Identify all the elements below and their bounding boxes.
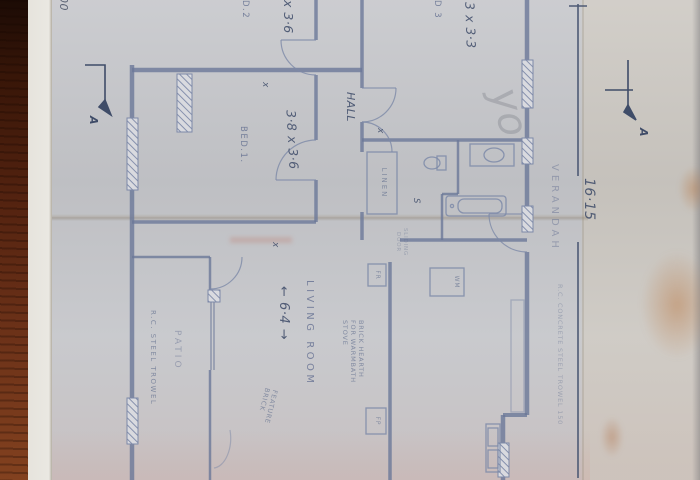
hearth-note-line3: STOVE bbox=[341, 320, 349, 406]
overall-dimension: 16·15 bbox=[581, 178, 597, 242]
door-mark-2: x bbox=[260, 82, 270, 88]
bed3-dimension: 3 x 3·3 bbox=[462, 2, 479, 49]
bed1-label: BED.1. bbox=[238, 126, 248, 164]
bed1-dimension: 3·8 x 3·6 bbox=[283, 110, 301, 170]
section-marker-a-top: A bbox=[637, 128, 650, 137]
door-mark-3: x bbox=[270, 242, 280, 248]
verandah-label: VERANDAH bbox=[549, 164, 560, 252]
living-room-dimension: ← 6·4 → bbox=[276, 286, 291, 340]
shelf-label: S bbox=[411, 198, 421, 204]
paper-white-edge bbox=[26, 0, 52, 480]
linen-label: LINEN bbox=[380, 154, 388, 212]
rotated-plan-canvas: 16·15 VERANDAH R.C. CONCRETE STEEL TROWE… bbox=[0, 0, 700, 480]
patio-label: PATIO bbox=[172, 330, 182, 371]
living-room-label: LIVING ROOM bbox=[304, 280, 315, 387]
patio-spec: R.C. STEEL TROWEL bbox=[149, 310, 157, 405]
sliding-door-label: SLIDING DOOR bbox=[395, 222, 408, 262]
fridge-label: FR bbox=[374, 265, 381, 285]
floor-plan-photo: 16·15 VERANDAH R.C. CONCRETE STEEL TROWE… bbox=[0, 0, 700, 480]
hearth-note-line2: FOR WARMBATH bbox=[348, 320, 356, 406]
dimension-fragment: 00 bbox=[57, 0, 70, 11]
walls bbox=[132, 0, 527, 480]
wood-table-surface bbox=[0, 0, 28, 480]
verandah-spec: R.C. CONCRETE STEEL TROWEL 150 bbox=[556, 284, 564, 425]
section-marker-a-bottom: A bbox=[87, 116, 100, 125]
fireplace-label: FP bbox=[374, 410, 381, 432]
windows bbox=[127, 60, 533, 477]
bed2-dimension: x 3·6 bbox=[281, 0, 296, 34]
hall-label: HALL bbox=[344, 92, 357, 122]
bed2-label: D.2 bbox=[240, 0, 250, 19]
hearth-note: BRICK HEARTH FOR WARMBATH STOVE bbox=[341, 320, 364, 406]
washing-machine-label: WM bbox=[453, 270, 460, 294]
bed3-label: D 3 bbox=[432, 0, 442, 19]
hearth-note-line1: BRICK HEARTH bbox=[356, 320, 364, 406]
door-mark-1: x bbox=[375, 128, 385, 134]
